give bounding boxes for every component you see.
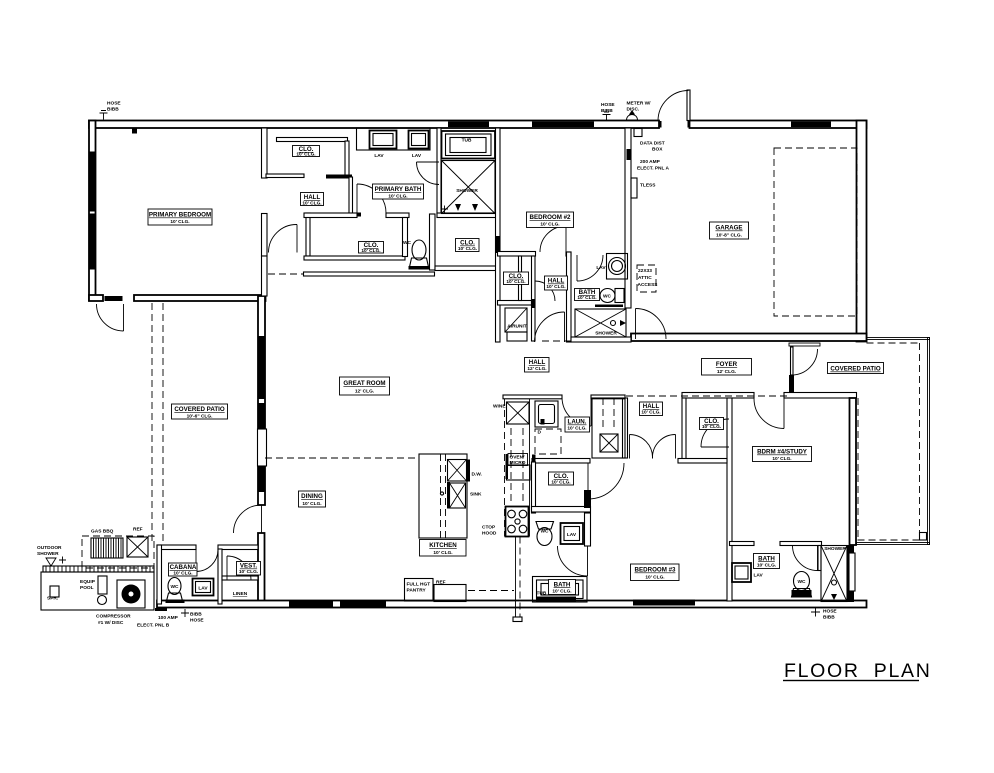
svg-text:10' CLG.: 10' CLG. xyxy=(361,248,380,254)
svg-text:HALL: HALL xyxy=(529,359,546,366)
svg-text:10' CLG.: 10' CLG. xyxy=(302,201,321,207)
svg-text:10' CLG.: 10' CLG. xyxy=(645,574,664,580)
svg-text:10' CLG.: 10' CLG. xyxy=(567,426,586,432)
svg-text:10' CLG.: 10' CLG. xyxy=(540,222,559,228)
svg-text:GARAGE: GARAGE xyxy=(715,225,742,232)
svg-text:BOX: BOX xyxy=(652,147,663,153)
svg-text:GAS BBQ: GAS BBQ xyxy=(91,529,114,535)
svg-text:10' CLG.: 10' CLG. xyxy=(506,279,525,285)
svg-text:BEDROOM #3: BEDROOM #3 xyxy=(635,567,676,574)
svg-text:22X33: 22X33 xyxy=(638,268,652,274)
svg-text:FULL HGT: FULL HGT xyxy=(407,582,431,588)
svg-text:10' CLG.: 10' CLG. xyxy=(546,284,565,290)
svg-text:DATA DIST: DATA DIST xyxy=(640,141,665,147)
svg-text:10' CLG.: 10' CLG. xyxy=(170,219,189,225)
svg-text:HOSE: HOSE xyxy=(823,609,837,615)
svg-text:SHOWER: SHOWER xyxy=(37,551,59,557)
svg-text:CLO.: CLO. xyxy=(554,473,569,480)
svg-text:SHOWER: SHOWER xyxy=(456,188,478,194)
svg-text:WC: WC xyxy=(171,584,180,590)
svg-text:HALL: HALL xyxy=(548,278,565,285)
svg-text:LAV: LAV xyxy=(754,573,764,579)
svg-text:FLOOR PLAN: FLOOR PLAN xyxy=(784,660,932,682)
svg-text:10' CLG.: 10' CLG. xyxy=(433,550,452,556)
svg-text:LAV: LAV xyxy=(596,265,606,271)
svg-text:12' CLG.: 12' CLG. xyxy=(355,389,374,395)
svg-text:10' CLG.: 10' CLG. xyxy=(757,563,776,569)
svg-text:HALL: HALL xyxy=(643,403,660,410)
svg-text:LAV: LAV xyxy=(567,532,577,538)
svg-text:12' CLG.: 12' CLG. xyxy=(717,369,736,375)
svg-text:10' CLG.: 10' CLG. xyxy=(302,501,321,507)
svg-text:SINK: SINK xyxy=(470,492,482,498)
svg-text:COVERED PATIO: COVERED PATIO xyxy=(830,366,880,373)
svg-text:LAUN.: LAUN. xyxy=(568,419,587,426)
svg-text:HOSE: HOSE xyxy=(190,618,204,624)
svg-text:TUB: TUB xyxy=(537,591,547,597)
svg-text:HOSE: HOSE xyxy=(107,101,121,107)
svg-text:KITCHEN: KITCHEN xyxy=(429,542,457,549)
svg-text:OVEN/: OVEN/ xyxy=(510,455,526,461)
svg-text:EQUIP: EQUIP xyxy=(80,579,96,585)
svg-text:10' CLG.: 10' CLG. xyxy=(173,570,192,576)
svg-text:SPR.: SPR. xyxy=(47,596,58,602)
svg-text:HOSE: HOSE xyxy=(601,102,615,108)
svg-text:VEST.: VEST. xyxy=(240,563,257,570)
svg-text:10' CLG.: 10' CLG. xyxy=(772,456,791,462)
svg-text:BIBB: BIBB xyxy=(823,615,835,621)
svg-text:SHOWER: SHOWER xyxy=(595,331,617,337)
svg-text:CABANA: CABANA xyxy=(170,564,197,571)
svg-text:D: D xyxy=(538,430,542,436)
svg-text:BIBB: BIBB xyxy=(190,612,202,618)
svg-text:HALL: HALL xyxy=(304,194,321,201)
svg-text:ELECT. PNL A: ELECT. PNL A xyxy=(637,166,670,172)
svg-text:10' CLG.: 10' CLG. xyxy=(702,424,721,430)
svg-text:LAV: LAV xyxy=(198,586,208,592)
svg-text:WC: WC xyxy=(603,294,612,300)
svg-text:HOOD: HOOD xyxy=(482,531,497,537)
svg-text:CLO.: CLO. xyxy=(509,273,524,280)
svg-text:D.W.: D.W. xyxy=(472,472,482,478)
svg-text:PANTRY: PANTRY xyxy=(407,588,427,594)
svg-text:100 AMP: 100 AMP xyxy=(158,615,179,621)
svg-text:DISC.: DISC. xyxy=(627,107,640,113)
svg-text:WC: WC xyxy=(541,529,550,535)
svg-text:LINEN: LINEN xyxy=(233,591,248,597)
svg-text:GREAT ROOM: GREAT ROOM xyxy=(343,380,385,387)
svg-text:BIBB: BIBB xyxy=(107,107,119,113)
svg-text:#1 W/ DISC: #1 W/ DISC xyxy=(98,620,124,626)
svg-text:BATH: BATH xyxy=(554,581,571,588)
svg-text:MICRO: MICRO xyxy=(510,460,526,466)
svg-text:LAV: LAV xyxy=(374,153,384,159)
svg-text:BEDROOM #2: BEDROOM #2 xyxy=(530,214,571,221)
svg-text:TLESS: TLESS xyxy=(640,183,656,189)
svg-text:BIBB: BIBB xyxy=(601,108,613,114)
svg-text:12' CLG.: 12' CLG. xyxy=(527,366,546,372)
svg-text:DINING: DINING xyxy=(301,493,323,500)
svg-text:WC: WC xyxy=(403,240,412,246)
svg-text:COVERED PATIO: COVERED PATIO xyxy=(174,406,224,413)
svg-text:AIRUNIT: AIRUNIT xyxy=(507,324,527,330)
svg-text:LAV: LAV xyxy=(412,153,422,159)
svg-text:BDRM #4/STUDY: BDRM #4/STUDY xyxy=(757,449,808,456)
svg-text:FOYER: FOYER xyxy=(716,361,738,368)
svg-text:10' CLG.: 10' CLG. xyxy=(551,480,570,486)
svg-text:SHOWER: SHOWER xyxy=(824,546,846,552)
svg-text:ATTIC: ATTIC xyxy=(638,275,652,281)
svg-text:TUB: TUB xyxy=(462,138,472,144)
svg-text:WC: WC xyxy=(798,579,807,585)
svg-text:WINE: WINE xyxy=(493,404,506,410)
svg-text:REF: REF xyxy=(133,527,143,533)
svg-text:METER W/: METER W/ xyxy=(627,101,652,107)
svg-text:10' CLG.: 10' CLG. xyxy=(458,246,477,252)
svg-text:10' CLG.: 10' CLG. xyxy=(641,410,660,416)
svg-text:PRIMARY BEDROOM: PRIMARY BEDROOM xyxy=(149,212,211,219)
svg-text:CTOP: CTOP xyxy=(482,525,496,531)
svg-text:200 AMP: 200 AMP xyxy=(640,159,661,165)
svg-text:10' CLG.: 10' CLG. xyxy=(552,589,571,595)
svg-text:10'-8" CLG.: 10'-8" CLG. xyxy=(716,233,742,239)
svg-text:POOL: POOL xyxy=(80,585,94,591)
svg-text:10' CLG.: 10' CLG. xyxy=(388,194,407,200)
svg-text:10'-6" CLG.: 10'-6" CLG. xyxy=(187,414,213,420)
svg-text:10' CLG.: 10' CLG. xyxy=(239,569,258,575)
svg-text:BATH: BATH xyxy=(758,555,775,562)
svg-text:CLO.: CLO. xyxy=(704,418,719,425)
svg-text:COMPRESSOR: COMPRESSOR xyxy=(96,614,131,620)
svg-text:CLO.: CLO. xyxy=(460,240,475,247)
svg-text:PRIMARY BATH: PRIMARY BATH xyxy=(375,186,422,193)
svg-text:10' CLG.: 10' CLG. xyxy=(577,295,596,301)
svg-text:10' CLG.: 10' CLG. xyxy=(296,152,315,158)
svg-text:REF: REF xyxy=(436,580,446,586)
svg-text:ACCESS: ACCESS xyxy=(638,282,659,288)
svg-text:ELECT. PNL B: ELECT. PNL B xyxy=(137,623,170,629)
svg-text:OUTDOOR: OUTDOOR xyxy=(37,545,62,551)
